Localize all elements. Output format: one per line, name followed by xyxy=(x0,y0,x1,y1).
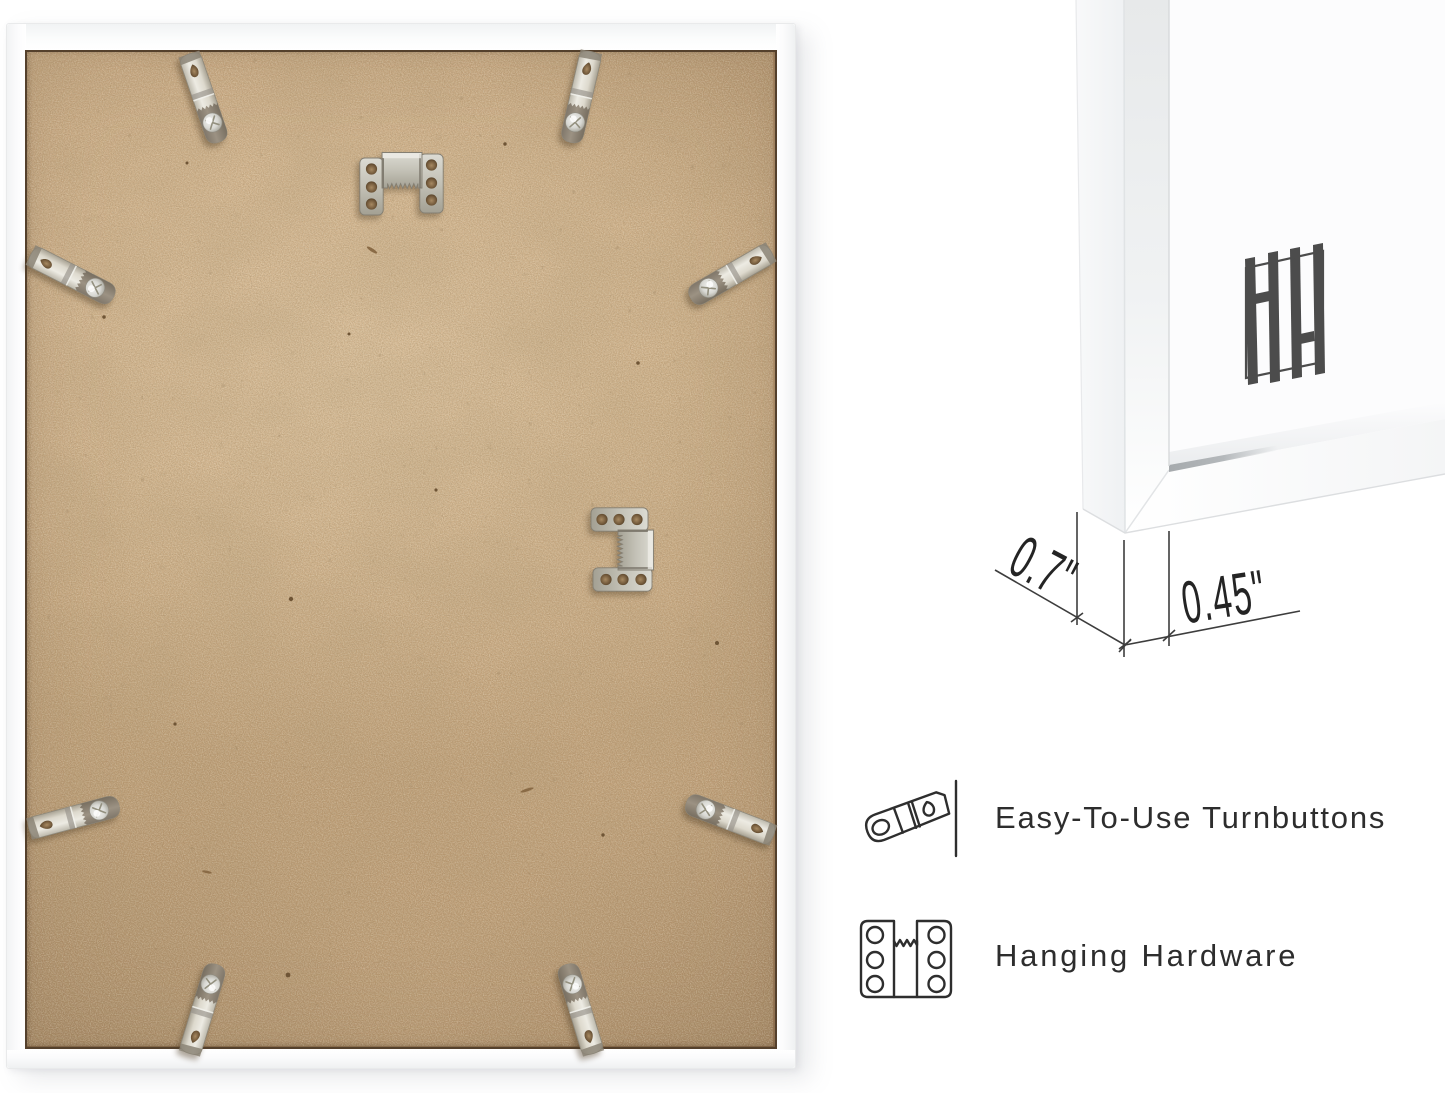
svg-text:0.7": 0.7" xyxy=(999,524,1087,613)
svg-text:0.45": 0.45" xyxy=(1177,558,1271,637)
